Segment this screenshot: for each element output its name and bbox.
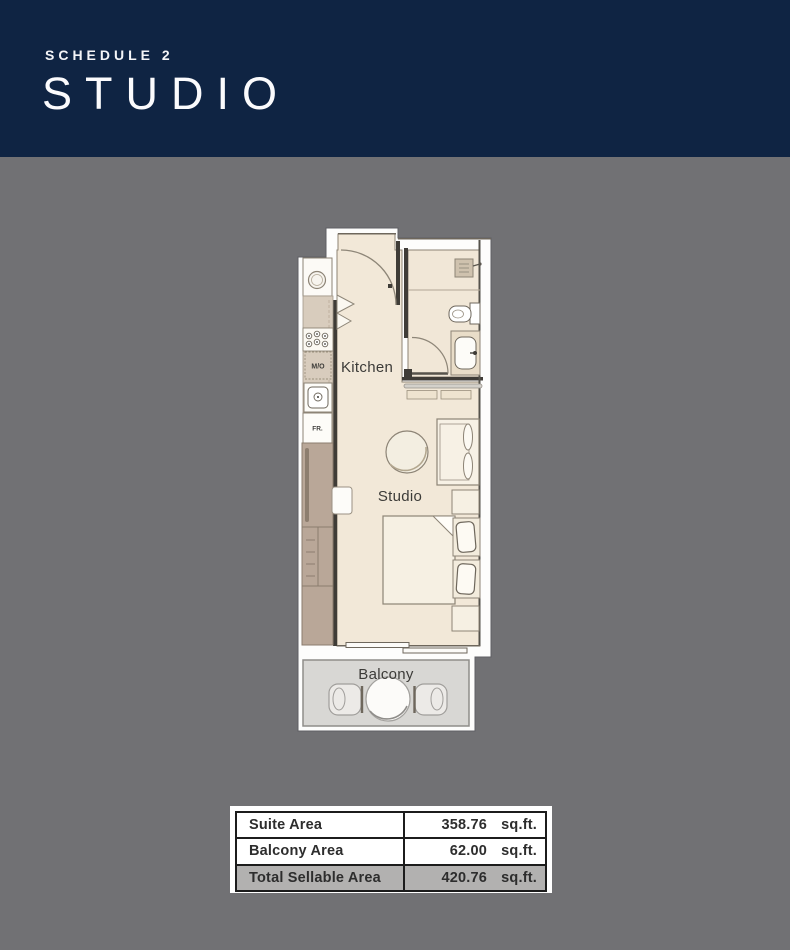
- row-value-cell: 62.00 sq.ft.: [405, 839, 545, 863]
- pillow: [456, 563, 476, 594]
- toilet: [449, 303, 480, 324]
- tv-console: [332, 487, 352, 514]
- microwave: M/O: [305, 352, 331, 379]
- hob-cooktop: [303, 328, 333, 351]
- balcony-table: [366, 677, 410, 721]
- nightstand: [452, 606, 479, 631]
- row-value: 62.00: [405, 843, 487, 859]
- fridge-label: FR.: [312, 426, 323, 433]
- entry-closet: [404, 384, 482, 399]
- table-row-balcony: Balcony Area 62.00 sq.ft.: [237, 837, 545, 863]
- kitchen-label: Kitchen: [341, 359, 393, 376]
- vanity-sink: [451, 331, 480, 375]
- washing-machine: [303, 258, 332, 296]
- pillow: [456, 521, 477, 552]
- balcony-chair-right: [415, 684, 448, 715]
- balcony-label: Balcony: [358, 666, 414, 683]
- fridge: FR.: [303, 413, 332, 443]
- row-unit: sq.ft.: [487, 817, 545, 833]
- microwave-label: M/O: [311, 364, 325, 371]
- table-row-suite: Suite Area 358.76 sq.ft.: [237, 813, 545, 837]
- row-unit: sq.ft.: [487, 870, 545, 886]
- area-table: Suite Area 358.76 sq.ft. Balcony Area 62…: [230, 806, 552, 893]
- row-label: Suite Area: [237, 813, 405, 837]
- studio-label: Studio: [378, 488, 422, 505]
- row-value: 358.76: [405, 817, 487, 833]
- row-value-cell: 420.76 sq.ft.: [405, 866, 545, 890]
- row-unit: sq.ft.: [487, 843, 545, 859]
- kitchen-sink: [304, 383, 332, 412]
- area-table-inner: Suite Area 358.76 sq.ft. Balcony Area 62…: [235, 811, 547, 892]
- row-value-cell: 358.76 sq.ft.: [405, 813, 545, 837]
- round-table: [386, 431, 428, 473]
- sofa: [437, 419, 479, 485]
- row-value: 420.76: [405, 870, 487, 886]
- row-label: Total Sellable Area: [237, 866, 405, 890]
- wardrobe: [302, 443, 333, 645]
- side-table: [452, 490, 479, 514]
- table-row-total: Total Sellable Area 420.76 sq.ft.: [237, 864, 545, 890]
- brochure-page: SCHEDULE 2 STUDIO: [0, 0, 790, 950]
- balcony-chair-left: [329, 684, 362, 715]
- row-label: Balcony Area: [237, 839, 405, 863]
